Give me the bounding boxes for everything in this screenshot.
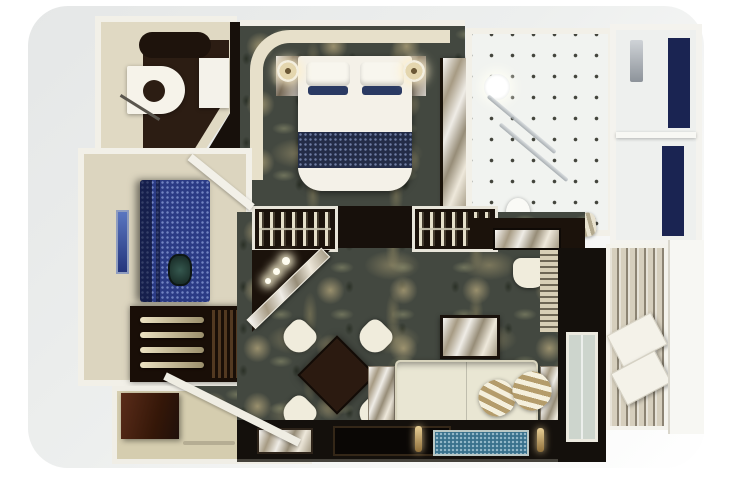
shower-column (630, 40, 643, 82)
ceiling-spotlight-1 (282, 257, 290, 265)
wardrobe-left (252, 206, 338, 252)
dressing-desk-notch (143, 80, 165, 102)
balcony-deck (606, 244, 668, 430)
wall-art (116, 210, 129, 274)
room-shower-wing (610, 24, 702, 246)
vanity-marble-wall (440, 58, 466, 212)
console-lamp-2 (537, 428, 544, 452)
blue-mosaic-runner (433, 430, 529, 456)
marble-console-table (493, 228, 561, 250)
floor-plan-scene (0, 0, 753, 502)
side-table-left (368, 366, 395, 422)
shelf-glassware-1 (140, 317, 204, 323)
dressing-bench (139, 32, 211, 58)
glass-divider (616, 132, 696, 138)
entry-threshold (183, 441, 235, 445)
navy-glass-panel-1 (668, 38, 690, 128)
bed-runner (298, 132, 412, 168)
bed (298, 56, 412, 191)
bar-cabinet (130, 306, 248, 382)
balcony-door-wall (558, 248, 606, 462)
pillow-right-navy (362, 86, 402, 95)
room-bathroom (466, 28, 614, 236)
cabinet-shelves (140, 308, 204, 374)
ceiling-spotlight-3 (265, 278, 271, 284)
room-living (237, 212, 585, 462)
bedside-lamp-left (277, 60, 299, 82)
balcony-door-glass (566, 332, 598, 442)
coffee-table (440, 315, 500, 359)
shelf-glassware-3 (140, 347, 204, 353)
hanging-clothes-left (259, 212, 331, 246)
ceiling-spotlight-2 (273, 268, 280, 275)
dining-chair-nw (278, 316, 320, 358)
wardrobe-divider (338, 206, 412, 248)
dining-chair-ne (354, 316, 396, 358)
navy-glass-panel-2 (662, 146, 684, 236)
balcony-railing-wing (668, 240, 704, 434)
decor-sculpture (168, 254, 192, 286)
pillow-right (360, 62, 404, 86)
dressing-cabinet (199, 58, 229, 108)
bedside-lamp-right (403, 60, 425, 82)
entry-door (121, 393, 179, 439)
shelf-glassware-2 (140, 332, 204, 338)
room-bedroom (240, 20, 465, 212)
shelf-glassware-4 (140, 362, 204, 368)
pillow-left (306, 62, 350, 86)
console-lamp-1 (415, 426, 422, 452)
pillow-left-navy (308, 86, 348, 95)
